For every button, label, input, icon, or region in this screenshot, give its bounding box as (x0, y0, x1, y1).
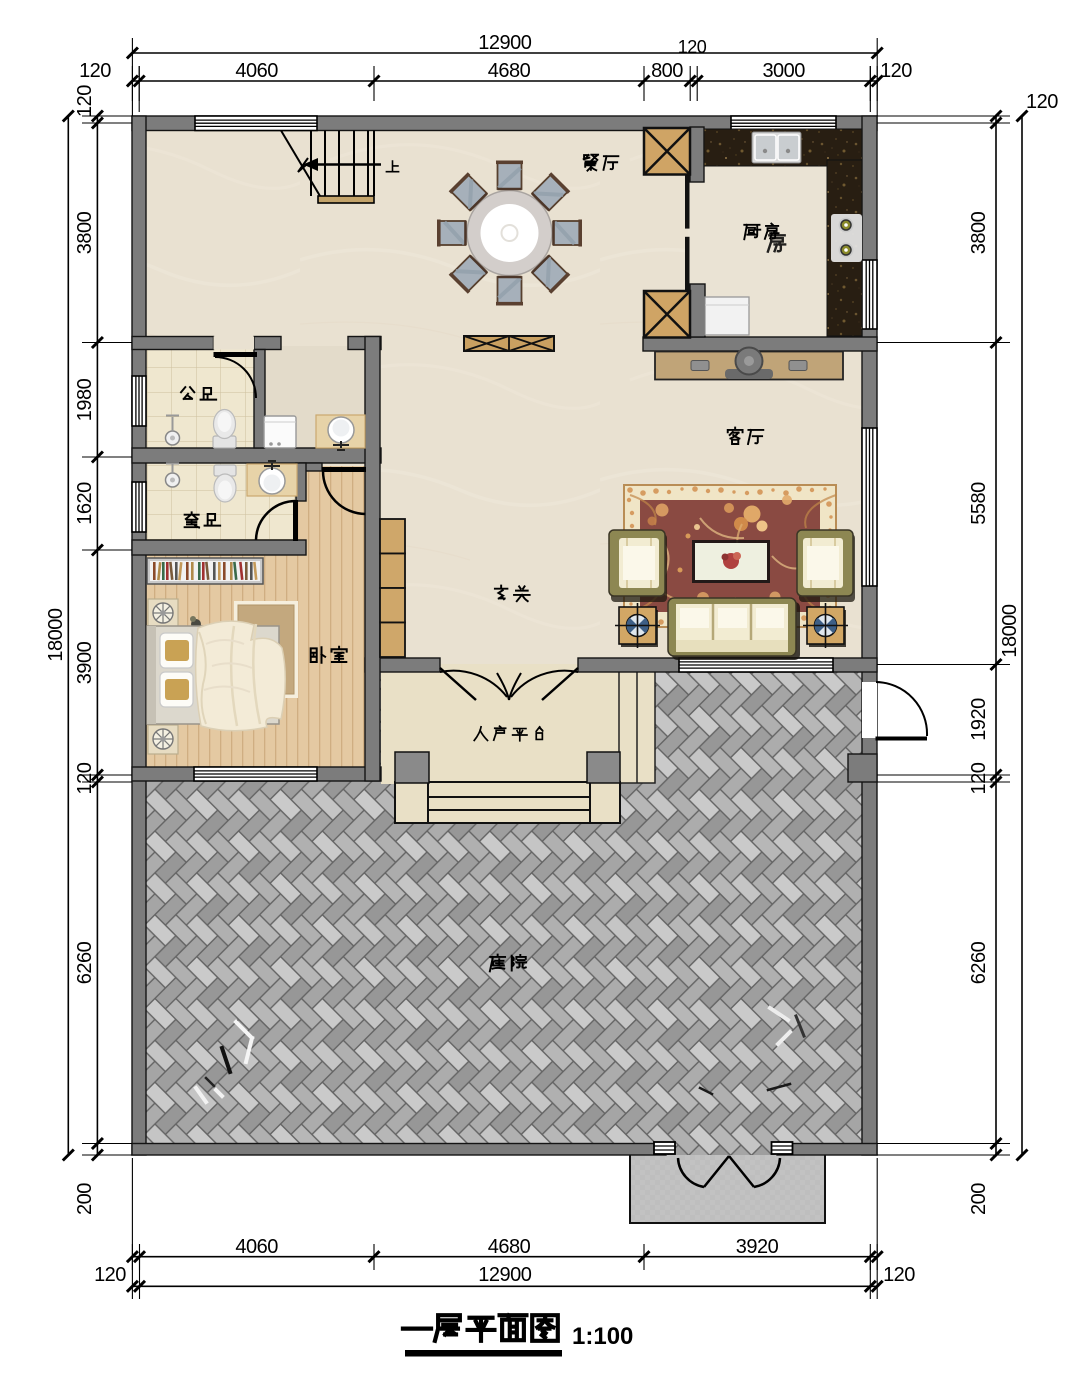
svg-text:4060: 4060 (235, 1236, 278, 1258)
svg-text:4060: 4060 (235, 60, 278, 82)
svg-text:120: 120 (883, 1264, 915, 1286)
svg-text:120: 120 (678, 37, 707, 57)
svg-text:120: 120 (74, 85, 96, 117)
svg-text:3920: 3920 (736, 1236, 779, 1258)
svg-text:4680: 4680 (488, 1236, 531, 1258)
svg-text:1920: 1920 (968, 698, 990, 741)
svg-text:120: 120 (880, 60, 912, 82)
svg-text:18000: 18000 (45, 608, 67, 661)
svg-text:200: 200 (968, 1183, 990, 1215)
svg-text:1:100: 1:100 (572, 1323, 633, 1350)
svg-text:1980: 1980 (74, 378, 96, 421)
svg-text:1620: 1620 (74, 482, 96, 525)
svg-text:3800: 3800 (74, 211, 96, 254)
svg-text:200: 200 (74, 1183, 96, 1215)
svg-text:3900: 3900 (74, 641, 96, 684)
svg-text:3000: 3000 (762, 60, 805, 82)
svg-text:800: 800 (651, 60, 683, 82)
svg-text:3800: 3800 (968, 211, 990, 254)
svg-text:12900: 12900 (478, 32, 531, 54)
svg-text:120: 120 (74, 762, 96, 794)
svg-text:12900: 12900 (478, 1264, 531, 1286)
svg-text:120: 120 (1026, 91, 1058, 113)
svg-text:120: 120 (94, 1264, 126, 1286)
svg-text:5580: 5580 (968, 482, 990, 525)
svg-text:6260: 6260 (968, 941, 990, 984)
svg-text:18000: 18000 (999, 604, 1021, 657)
svg-text:6260: 6260 (74, 941, 96, 984)
svg-text:4680: 4680 (488, 60, 531, 82)
svg-text:120: 120 (968, 762, 990, 794)
svg-text:120: 120 (79, 60, 111, 82)
